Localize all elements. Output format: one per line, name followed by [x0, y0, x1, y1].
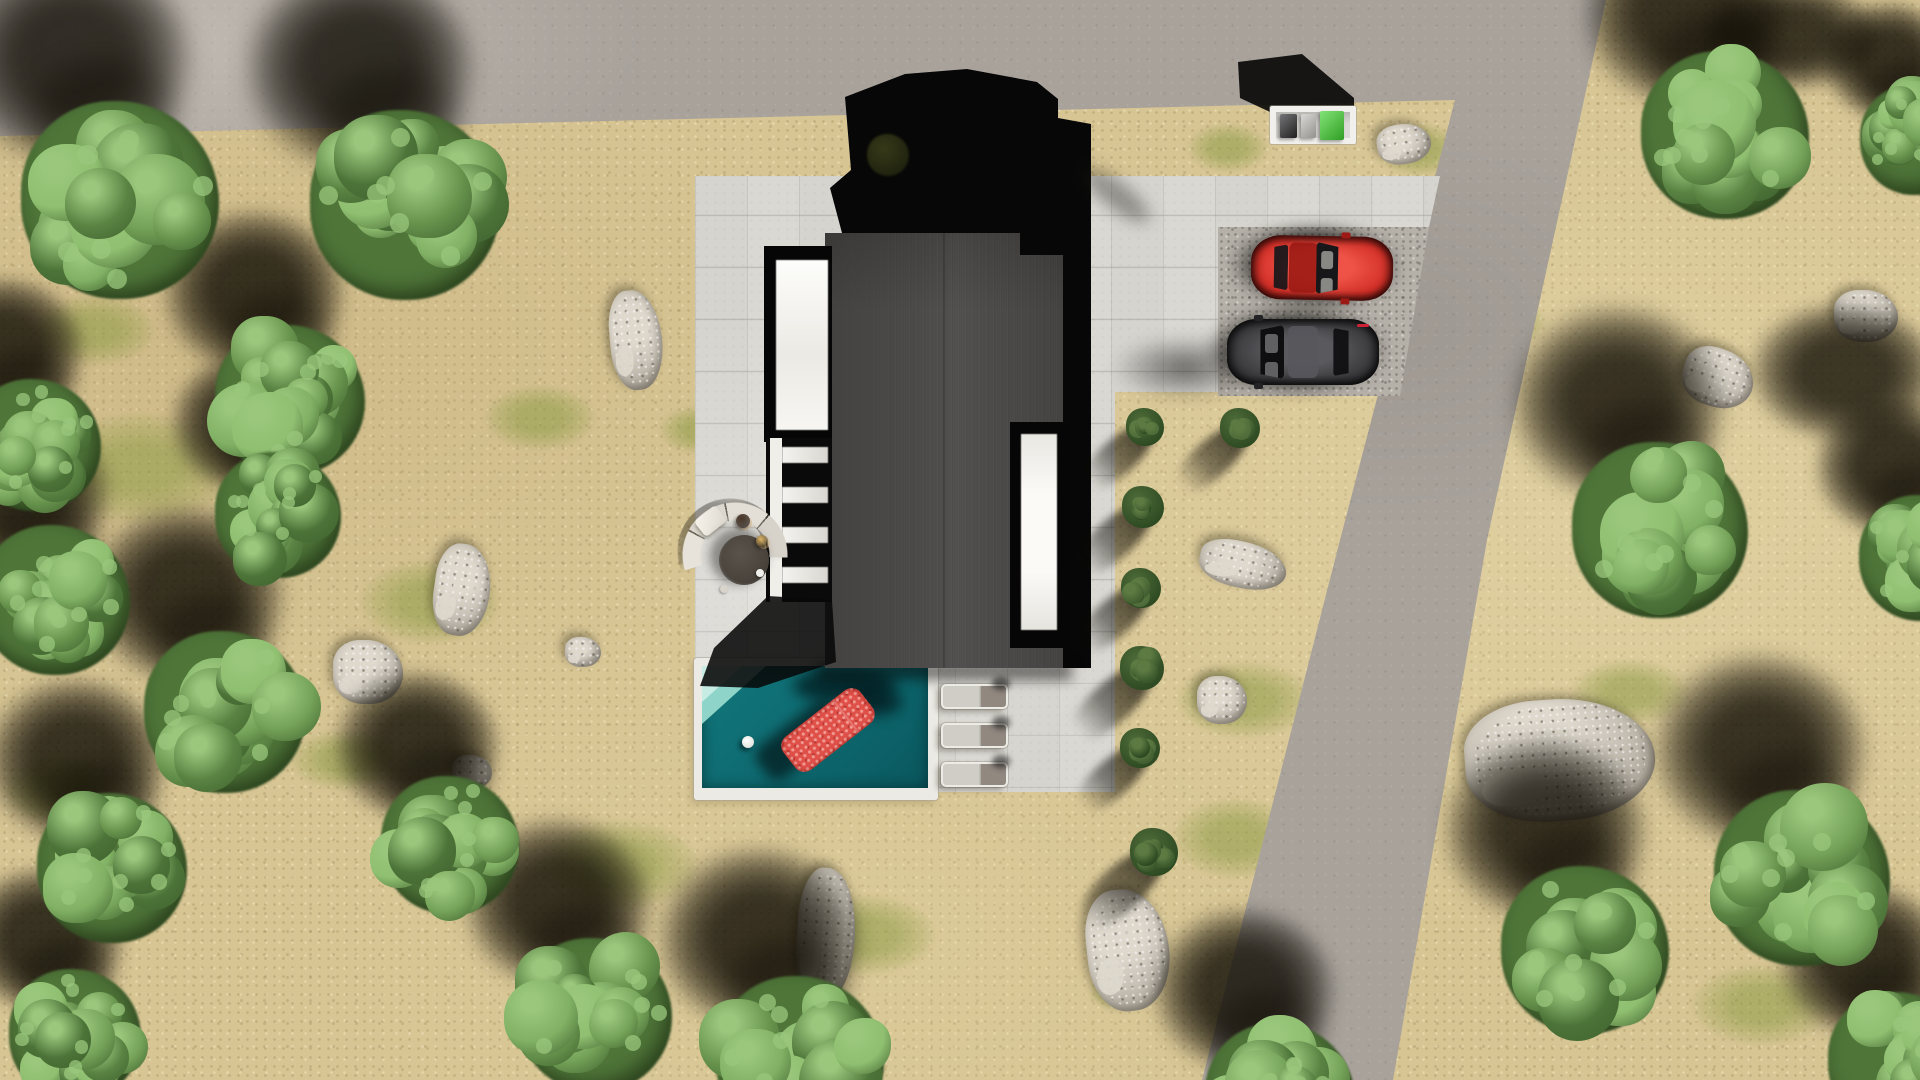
tree-leaf-highlight	[173, 695, 190, 712]
waste-bin	[1280, 114, 1297, 138]
tree-leaf-highlight	[1262, 1073, 1277, 1080]
tree-clump	[1749, 127, 1811, 189]
olive-tree	[8, 88, 232, 312]
cypress-clump	[1134, 842, 1158, 866]
tree-leaf-highlight	[66, 983, 80, 997]
tree-leaf-highlight	[258, 649, 275, 666]
sun-lounger	[941, 762, 1008, 787]
tree-leaf-highlight	[771, 1006, 788, 1023]
grass-patch	[485, 386, 595, 450]
tree-leaf-highlight	[71, 607, 86, 622]
tree-leaf-highlight	[253, 483, 266, 496]
car-windshield	[1260, 325, 1284, 379]
olive-tree	[372, 767, 528, 923]
tree-leaf-highlight	[458, 801, 472, 815]
tree-leaf-highlight	[441, 246, 460, 265]
cypress-clump	[1145, 422, 1159, 436]
tree-leaf-highlight	[77, 868, 92, 883]
tree-leaf-highlight	[1762, 869, 1780, 887]
sun-lounger	[941, 684, 1008, 709]
tree-leaf-highlight	[91, 239, 111, 259]
car-seat	[1265, 334, 1278, 352]
pool-ball	[742, 736, 754, 748]
tree-leaf-highlight	[1668, 106, 1685, 123]
olive-tree	[507, 927, 683, 1080]
tree-leaf-highlight	[75, 1040, 89, 1054]
tree-leaf-highlight	[1691, 146, 1708, 163]
car-taillight	[1357, 324, 1369, 327]
lounger-pillow-shadow	[992, 677, 1010, 690]
tree-leaf-highlight	[1694, 112, 1711, 129]
tree-leaf-highlight	[16, 393, 30, 407]
olive-tree	[1195, 1013, 1365, 1080]
tree-leaf-highlight	[462, 832, 476, 846]
site-render-canvas	[0, 0, 1920, 1080]
tree-leaf-highlight	[39, 154, 59, 174]
tree-clump	[472, 817, 519, 864]
grass-patch	[1188, 124, 1268, 172]
tree-leaf-highlight	[77, 145, 97, 165]
cypress-clump	[1130, 737, 1151, 758]
tree-leaf-highlight	[39, 636, 54, 651]
tree-leaf-highlight	[32, 409, 46, 423]
cypress-shrub	[1118, 644, 1166, 692]
tree-leaf-highlight	[1885, 143, 1896, 154]
car-mirror	[1254, 383, 1263, 389]
tree-leaf-highlight	[1663, 147, 1680, 164]
tree-clump	[49, 551, 107, 609]
table-item	[720, 585, 728, 593]
tree-leaf-highlight	[625, 1035, 641, 1051]
tree-leaf-highlight	[1713, 98, 1730, 115]
tree-leaf-highlight	[1880, 584, 1893, 597]
olive-tree	[297, 97, 513, 313]
olive-tree	[1818, 982, 1920, 1080]
tree-leaf-highlight	[427, 877, 441, 891]
cypress-shrub	[1128, 826, 1180, 878]
waste-bin	[1320, 111, 1344, 140]
tree-leaf-highlight	[634, 997, 650, 1013]
tree-leaf-highlight	[119, 897, 134, 912]
car-mirror	[1342, 232, 1351, 238]
tree-leaf-highlight	[1646, 447, 1664, 465]
rock-cluster	[606, 288, 667, 392]
rock-cluster	[1197, 676, 1247, 724]
tree-leaf-highlight	[1286, 1057, 1301, 1072]
rock-fragment	[568, 654, 580, 663]
rock-cluster	[1374, 120, 1433, 167]
table-item	[756, 569, 764, 577]
tree-leaf-highlight	[235, 381, 250, 396]
pergola-slat	[782, 487, 828, 503]
tree-leaf-highlight	[119, 130, 139, 150]
cypress-shrub	[1120, 484, 1166, 530]
tree-leaf-highlight	[1705, 500, 1723, 518]
olive-tree	[1850, 486, 1920, 630]
tree-leaf-highlight	[80, 415, 94, 429]
tree-clump	[1685, 525, 1735, 575]
tree-leaf-highlight	[812, 991, 829, 1008]
tree-leaf-highlight	[1896, 550, 1909, 563]
tree-leaf-highlight	[51, 613, 66, 628]
olive-tree	[1702, 778, 1902, 978]
tree-leaf-highlight	[546, 960, 562, 976]
tree-leaf-highlight	[536, 1038, 552, 1054]
red-car	[1250, 235, 1393, 301]
tree-leaf-highlight	[1857, 892, 1875, 910]
olive-tree	[1490, 855, 1680, 1045]
olive-tree	[705, 965, 895, 1080]
tree-leaf-highlight	[164, 710, 181, 727]
olive-tree	[1853, 78, 1920, 202]
tree-leaf-highlight	[1897, 574, 1910, 587]
tree-leaf-highlight	[1626, 514, 1644, 532]
pergola-slat	[782, 527, 828, 543]
cypress-shrub	[1119, 566, 1163, 610]
tree-leaf-highlight	[1568, 984, 1585, 1001]
tree-leaf-highlight	[103, 599, 118, 614]
olive-tree	[206, 443, 350, 587]
tree-leaf-highlight	[276, 527, 289, 540]
tree-leaf-highlight	[1536, 990, 1553, 1007]
tree-leaf-highlight	[61, 890, 76, 905]
olive-tree	[1560, 430, 1760, 630]
tree-leaf-highlight	[1762, 170, 1779, 187]
tree-leaf-highlight	[1813, 833, 1831, 851]
tree-leaf-highlight	[158, 733, 175, 750]
tree-leaf-highlight	[69, 1060, 83, 1074]
tree-leaf-highlight	[63, 417, 77, 431]
shaded-bush	[867, 134, 909, 176]
cypress-shrub	[1218, 406, 1262, 450]
tree-leaf-highlight	[36, 556, 51, 571]
tree-leaf-highlight	[102, 559, 117, 574]
waste-bin	[1301, 114, 1316, 138]
tree-leaf-highlight	[20, 1022, 34, 1036]
olive-tree	[133, 620, 317, 804]
rock-cluster	[565, 637, 601, 667]
tree-leaf-highlight	[111, 1003, 125, 1017]
cypress-clump	[1232, 420, 1251, 439]
car-mirror	[1254, 315, 1263, 321]
tree-clump	[153, 192, 212, 251]
tree-leaf-highlight	[773, 1032, 790, 1049]
tree-leaf-highlight	[1732, 843, 1750, 861]
tree-leaf-highlight	[444, 786, 458, 800]
car-seat	[1321, 251, 1333, 269]
person	[736, 514, 750, 528]
olive-tree	[27, 783, 197, 953]
tree-leaf-highlight	[724, 1049, 741, 1066]
tree-leaf-highlight	[151, 874, 166, 889]
tree-leaf-highlight	[390, 213, 409, 232]
tree-leaf-highlight	[460, 853, 474, 867]
tree-leaf-highlight	[32, 581, 47, 596]
car-rear-window	[1273, 244, 1288, 290]
tree-leaf-highlight	[35, 385, 49, 399]
tree-leaf-highlight	[466, 784, 480, 798]
tree-leaf-highlight	[1676, 129, 1693, 146]
courtyard-skylight	[1021, 434, 1057, 630]
sun-lounger	[941, 723, 1008, 748]
tree-leaf-highlight	[200, 691, 217, 708]
pergola-slat	[782, 567, 828, 583]
cypress-shrub	[1124, 406, 1166, 448]
lounger-pillow-shadow	[992, 755, 1010, 768]
tree-clump	[233, 532, 286, 585]
lounger-pillow-shadow	[992, 716, 1010, 729]
tree-leaf-highlight	[10, 595, 25, 610]
person	[756, 535, 768, 547]
cypress-clump	[1135, 659, 1158, 682]
car-rear-window	[1333, 328, 1348, 376]
tree-clump	[43, 853, 113, 923]
olive-tree	[1630, 40, 1820, 230]
car-mirror	[1341, 298, 1350, 304]
tree-clump	[65, 168, 136, 239]
tree-leaf-highlight	[1914, 149, 1920, 160]
pergola-slat	[782, 447, 828, 463]
tree-leaf-highlight	[58, 242, 78, 262]
tree-clump	[834, 1018, 891, 1075]
car-windshield	[1316, 242, 1339, 294]
tree-leaf-highlight	[136, 805, 151, 820]
tree-clump	[1574, 892, 1636, 954]
tree-leaf-highlight	[309, 470, 322, 483]
tree-leaf-highlight	[1911, 1006, 1920, 1020]
courtyard-skylight	[776, 260, 828, 430]
olive-tree	[0, 960, 150, 1080]
tree-leaf-highlight	[415, 165, 434, 184]
olive-tree	[0, 515, 140, 685]
tree-leaf-highlight	[631, 974, 647, 990]
rock-cluster	[1195, 533, 1291, 596]
cypress-clump	[1135, 497, 1149, 511]
tree-leaf-highlight	[1683, 474, 1701, 492]
tree-leaf-highlight	[1769, 834, 1787, 852]
cypress-shrub	[1118, 726, 1162, 770]
dark-car	[1227, 319, 1379, 385]
tree-leaf-highlight	[252, 744, 269, 761]
tree-clump	[274, 464, 316, 506]
tree-clump	[100, 797, 142, 839]
olive-tree	[0, 370, 110, 520]
tree-leaf-highlight	[107, 269, 127, 289]
car-roof-panel	[1289, 242, 1318, 292]
car-roof-panel	[1288, 326, 1318, 378]
tree-leaf-highlight	[1872, 154, 1883, 165]
